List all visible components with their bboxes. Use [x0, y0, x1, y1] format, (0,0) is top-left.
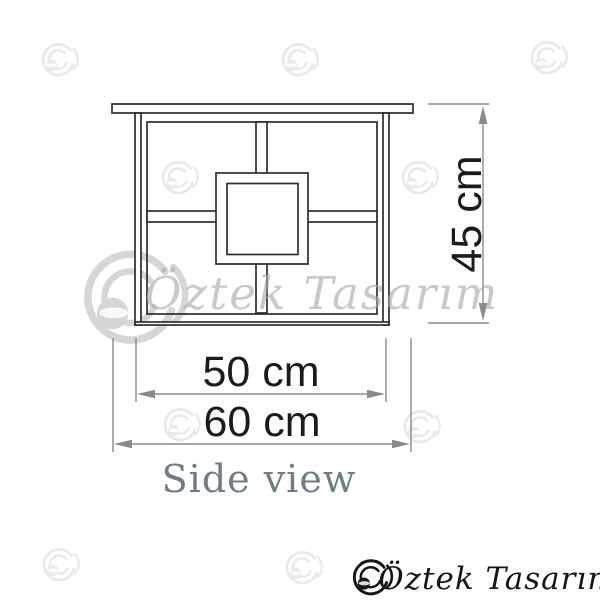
arrow-up-icon: [479, 106, 488, 124]
swirl-watermark-icon: [403, 162, 438, 193]
swirl-watermark-icon: [165, 409, 200, 440]
swirl-watermark-icon: [163, 162, 198, 193]
swirl-watermark-icon: [405, 411, 440, 442]
arrow-right-icon: [392, 440, 410, 449]
swirl-watermark-icon: [43, 44, 78, 75]
bottom-rail: [135, 322, 389, 325]
diagram-svg: 45 cm 50 cm 60 cm Side view Öztek Tasarı…: [0, 0, 600, 600]
swirl-watermark-icon: [532, 42, 567, 73]
center-square-inner: [227, 184, 298, 255]
swirl-watermark-icon: [44, 549, 79, 580]
total-width-dimension-label: 60 cm: [203, 398, 320, 446]
height-dimension-label: 45 cm: [443, 155, 491, 272]
arrow-left-icon: [137, 390, 155, 399]
left-leg: [135, 113, 141, 325]
view-label: Side view: [162, 457, 357, 501]
tabletop-board: [112, 104, 413, 113]
arrow-left-icon: [114, 440, 132, 449]
swirl-watermark-icon: [283, 44, 318, 75]
shelf-width-dimension: 50 cm: [136, 338, 386, 402]
brand-logo: Öztek Tasarım: [354, 559, 600, 597]
watermark-brand-text: Öztek Tasarım: [145, 267, 500, 320]
logo-brand-text: Öztek Tasarım: [378, 559, 600, 597]
arrow-right-icon: [367, 390, 385, 399]
shelf-width-dimension-label: 50 cm: [202, 348, 319, 396]
diagram-canvas: 45 cm 50 cm 60 cm Side view Öztek Tasarı…: [0, 0, 600, 600]
swirl-watermark-icon: [287, 552, 322, 583]
